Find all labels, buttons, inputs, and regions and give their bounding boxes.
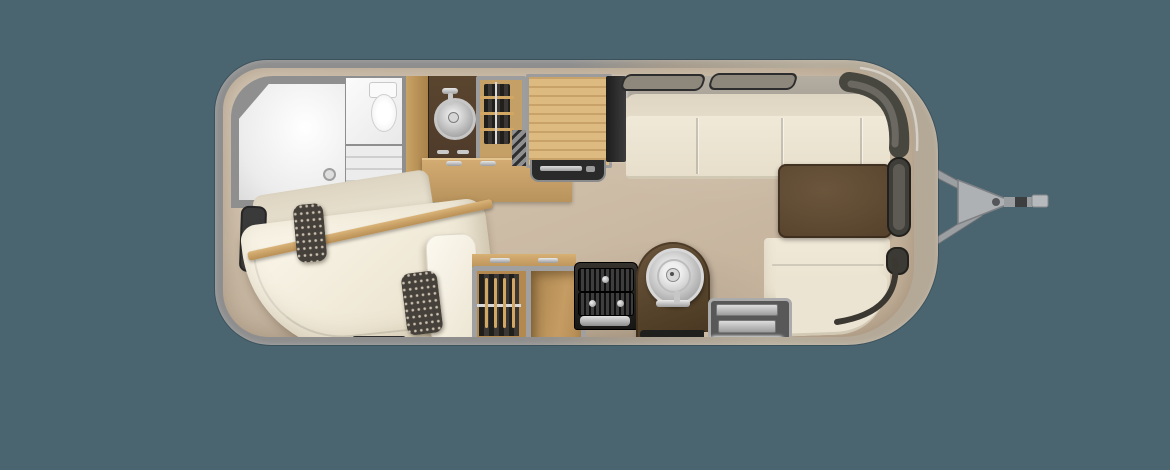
range-handle bbox=[540, 166, 582, 171]
galley-counter bbox=[526, 74, 612, 168]
sink-drain-dot bbox=[670, 272, 674, 276]
step-tread bbox=[716, 304, 778, 316]
entry-floor-mat bbox=[640, 330, 706, 337]
hitch-assembly bbox=[920, 150, 1050, 260]
floor-plan-scene bbox=[0, 0, 1170, 470]
drawer-pull bbox=[457, 150, 469, 154]
drawer-knob bbox=[602, 276, 609, 283]
coupler-latch bbox=[1015, 197, 1027, 207]
drawer-knob bbox=[617, 300, 624, 307]
dinette-table bbox=[778, 164, 892, 238]
drawer-pull bbox=[480, 161, 496, 166]
drawer bbox=[578, 292, 634, 316]
vanity-sink-drain-icon bbox=[448, 112, 459, 123]
hanger-icon bbox=[485, 278, 488, 328]
faucet-stem bbox=[674, 291, 680, 303]
drawer-pull bbox=[437, 150, 449, 154]
step-tread bbox=[718, 320, 776, 333]
toilet bbox=[371, 94, 397, 132]
grab-handle bbox=[352, 336, 406, 337]
hanger-icon bbox=[503, 278, 506, 328]
hanger-icon bbox=[512, 278, 515, 328]
closet-rod bbox=[495, 82, 497, 144]
recessed-pull bbox=[538, 258, 558, 263]
step-light bbox=[710, 336, 784, 337]
interior-floor bbox=[223, 68, 914, 337]
hanger-icon bbox=[480, 112, 514, 115]
trailer-body bbox=[215, 60, 938, 345]
hanger-icon bbox=[480, 128, 514, 131]
faucet-icon bbox=[656, 300, 690, 307]
recessed-pull bbox=[490, 258, 510, 263]
accent-pillow bbox=[400, 270, 443, 336]
drawer-pull bbox=[446, 161, 462, 166]
hanger-icon bbox=[480, 96, 514, 99]
shower-drain-icon bbox=[323, 168, 336, 181]
cushion-seam bbox=[696, 118, 698, 174]
chest-base-rail bbox=[580, 316, 630, 326]
accent-pillow bbox=[293, 203, 328, 263]
drawer-knob bbox=[589, 300, 596, 307]
awning-window-1 bbox=[619, 74, 707, 91]
furnace-vent-icon bbox=[512, 130, 526, 166]
range-knob bbox=[586, 166, 595, 172]
shower-stall bbox=[239, 84, 345, 200]
vanity-faucet-stem bbox=[448, 93, 453, 105]
hitch-coupler bbox=[1032, 195, 1048, 207]
cushion-seam bbox=[772, 264, 884, 266]
hanger-icon bbox=[494, 278, 497, 328]
tongue-jack bbox=[992, 198, 1000, 206]
awning-window-2 bbox=[707, 73, 799, 90]
